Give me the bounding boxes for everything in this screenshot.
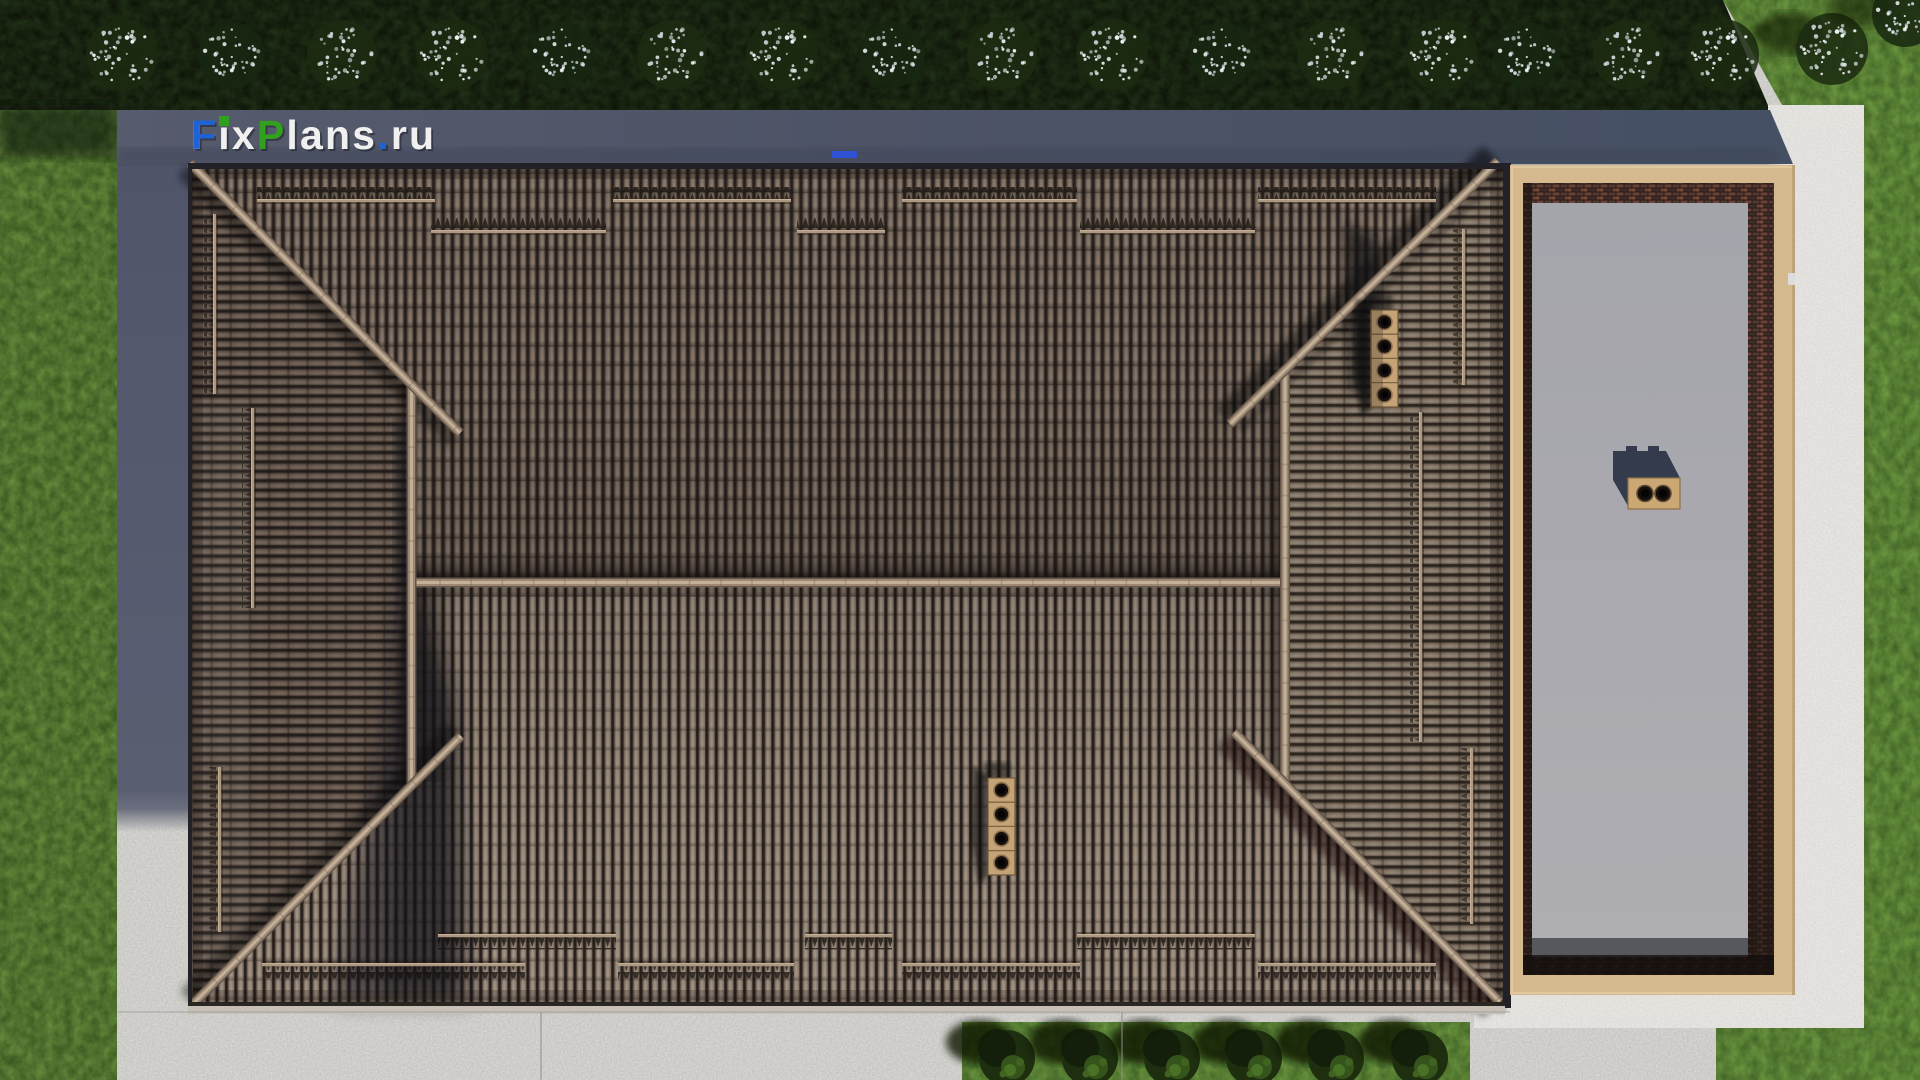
svg-text:F: F [191,112,218,158]
